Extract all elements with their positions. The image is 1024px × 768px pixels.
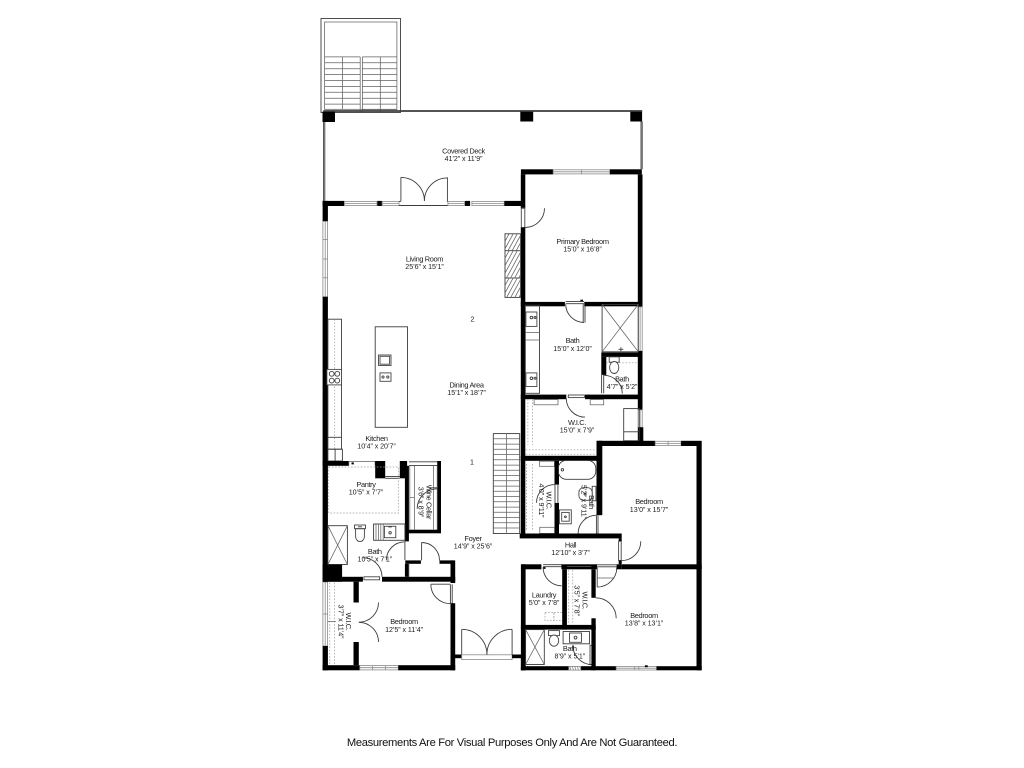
svg-text:8’9” x 5’1”: 8’9” x 5’1” [554, 652, 585, 660]
svg-text:3’6” x 8’9”: 3’6” x 8’9” [417, 487, 425, 518]
svg-text:13’8” x 13’1”: 13’8” x 13’1” [625, 620, 664, 628]
svg-text:41’2” x 11’9”: 41’2” x 11’9” [445, 155, 484, 163]
svg-text:4’7” x 5’2”: 4’7” x 5’2” [607, 383, 638, 391]
svg-text:15’1” x 18’7”: 15’1” x 18’7” [447, 389, 486, 397]
svg-text:5’2” x 9’11”: 5’2” x 9’11” [579, 485, 587, 520]
svg-text:15’0” x 7’9”: 15’0” x 7’9” [560, 426, 595, 434]
svg-text:25’6” x 15’1”: 25’6” x 15’1” [405, 263, 444, 271]
svg-text:3’7” x 11’4”: 3’7” x 11’4” [336, 605, 344, 640]
svg-text:14’9” x 25’6”: 14’9” x 25’6” [454, 542, 493, 550]
svg-text:4’0” x 9’11”: 4’0” x 9’11” [537, 484, 545, 519]
svg-text:12’10” x 3’7”: 12’10” x 3’7” [551, 549, 590, 557]
svg-text:15’0” x 16’8”: 15’0” x 16’8” [563, 245, 602, 253]
svg-text:15’0” x 12’0”: 15’0” x 12’0” [553, 345, 592, 353]
svg-text:10’4” x 20’7”: 10’4” x 20’7” [357, 442, 396, 450]
svg-text:5’0” x 7’8”: 5’0” x 7’8” [529, 599, 560, 607]
svg-text:10’5” x 7’7”: 10’5” x 7’7” [349, 488, 384, 496]
svg-text:2: 2 [471, 316, 475, 324]
svg-text:3’5” x 7’8”: 3’5” x 7’8” [573, 585, 581, 616]
svg-text:Measurements Are For Visual Pu: Measurements Are For Visual Purposes Onl… [347, 737, 678, 749]
svg-text:12’5” x 11’4”: 12’5” x 11’4” [385, 626, 424, 634]
svg-text:13’0” x 15’7”: 13’0” x 15’7” [630, 506, 669, 514]
svg-text:1: 1 [470, 458, 474, 466]
